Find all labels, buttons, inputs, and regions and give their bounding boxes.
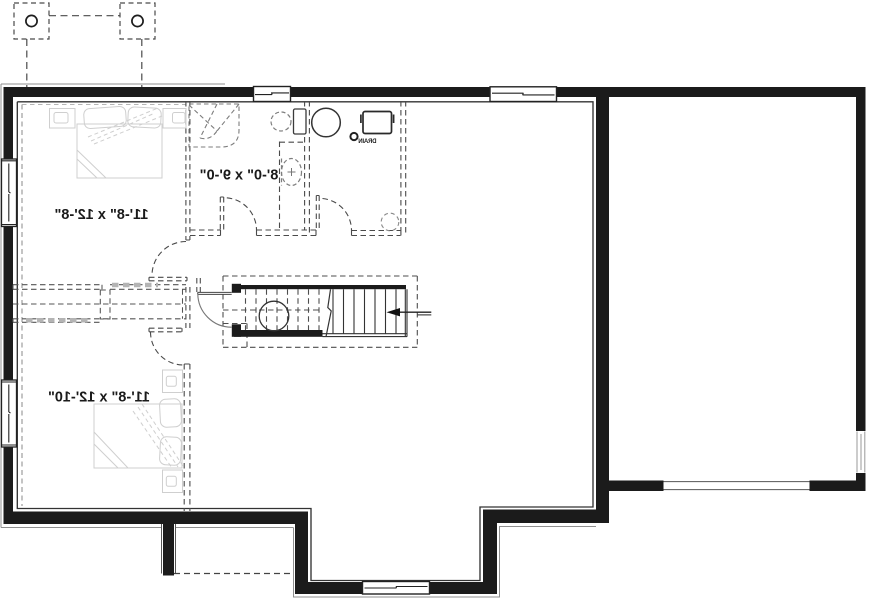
svg-text:8'-0" x 9'-0": 8'-0" x 9'-0" [200,168,279,184]
svg-text:11'-8" x 12'-8": 11'-8" x 12'-8" [54,207,148,223]
svg-text:DRAIN: DRAIN [359,139,377,145]
svg-text:11'-8" x 12'-10": 11'-8" x 12'-10" [48,390,150,406]
